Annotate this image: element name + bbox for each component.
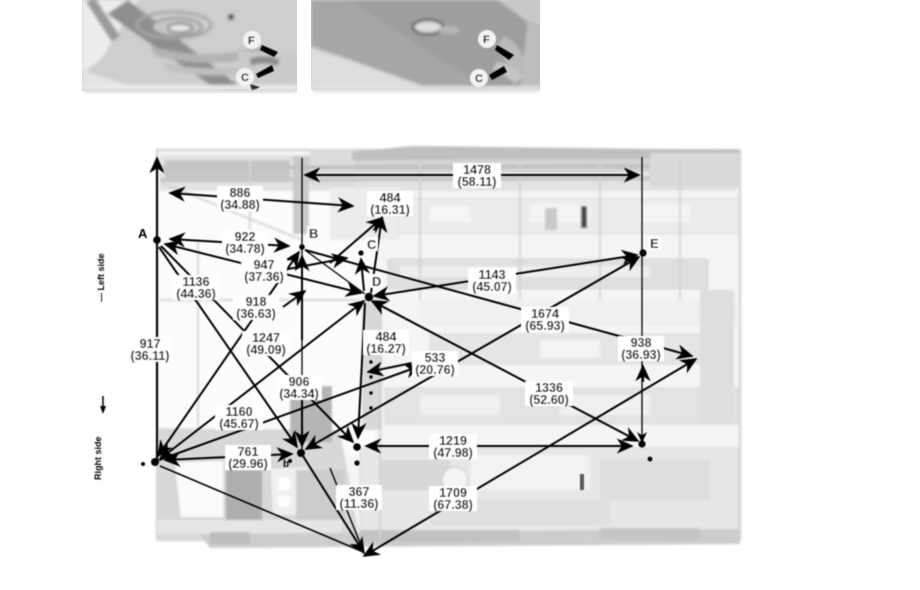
svg-text:(16.27): (16.27): [366, 342, 406, 356]
svg-text:B: B: [309, 226, 318, 241]
svg-text:(20.76): (20.76): [415, 363, 455, 377]
svg-text:(34.34): (34.34): [279, 387, 319, 401]
svg-text:(47.98): (47.98): [433, 446, 473, 460]
svg-text:(45.07): (45.07): [472, 280, 512, 294]
svg-text:F: F: [483, 34, 490, 46]
svg-text:(36.63): (36.63): [236, 307, 276, 321]
svg-text:D: D: [372, 274, 381, 289]
svg-text:(34.88): (34.88): [220, 198, 260, 212]
svg-text:(58.11): (58.11): [458, 175, 497, 189]
svg-text:C: C: [367, 237, 377, 252]
svg-text:(45.67): (45.67): [219, 417, 259, 431]
svg-text:— Left side: — Left side: [96, 253, 106, 302]
svg-text:(37.36): (37.36): [244, 270, 284, 284]
svg-text:A: A: [138, 226, 148, 241]
svg-text:(65.93): (65.93): [525, 319, 565, 333]
svg-text:(11.36): (11.36): [340, 497, 379, 511]
svg-text:(52.60): (52.60): [529, 393, 569, 407]
svg-text:C: C: [475, 73, 483, 85]
svg-text:(36.93): (36.93): [621, 348, 661, 362]
svg-text:F: F: [248, 35, 255, 47]
svg-text:(44.36): (44.36): [176, 287, 216, 301]
svg-text:(16.31): (16.31): [370, 203, 410, 217]
svg-text:Right side: Right side: [93, 436, 103, 480]
svg-text:E: E: [650, 236, 659, 251]
svg-text:(34.78): (34.78): [225, 242, 265, 256]
svg-text:(29.96): (29.96): [228, 457, 268, 471]
svg-text:b: b: [283, 459, 289, 470]
svg-text:(36.11): (36.11): [131, 349, 170, 363]
svg-text:(67.38): (67.38): [433, 498, 473, 512]
svg-text:(49.09): (49.09): [246, 343, 286, 357]
svg-text:C: C: [241, 72, 249, 84]
